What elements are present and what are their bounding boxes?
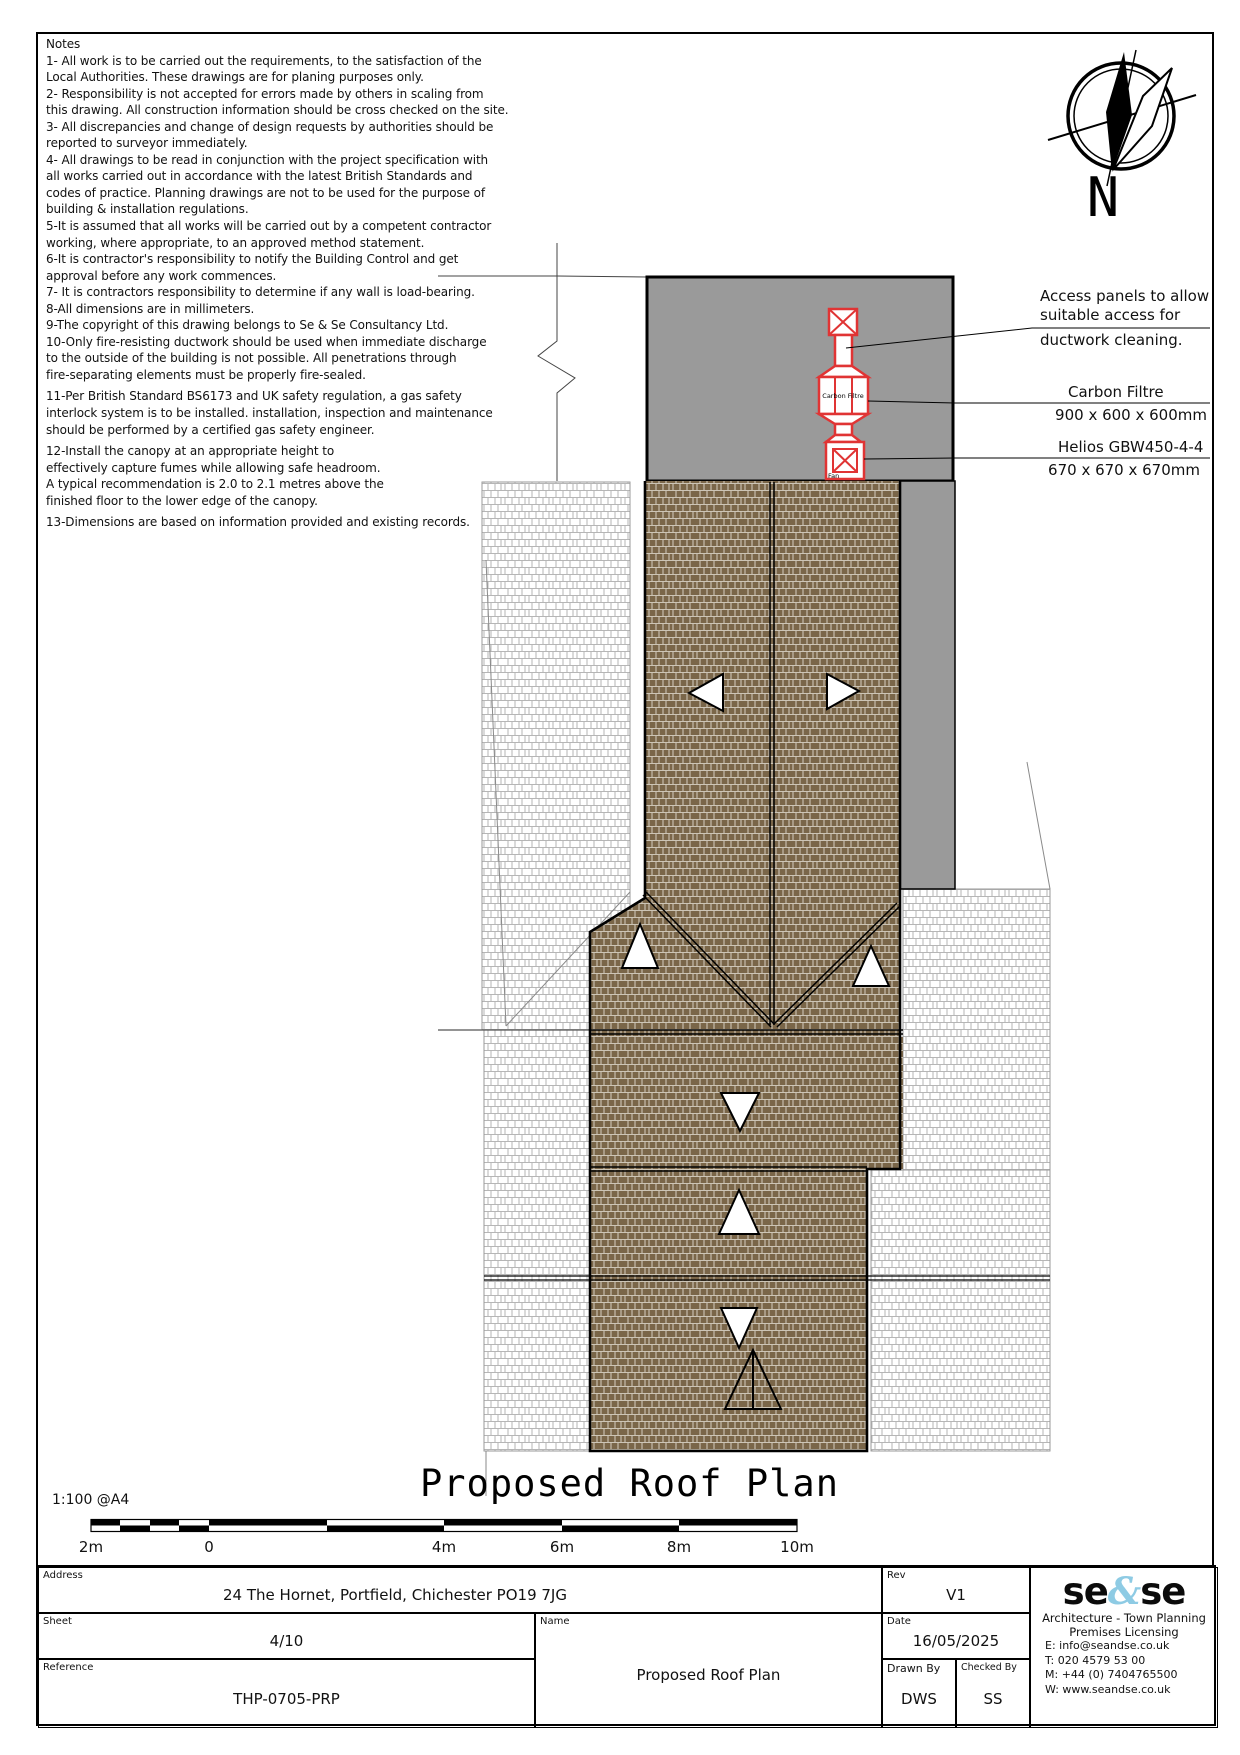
drawn-by-cell: Drawn By DWS bbox=[882, 1659, 956, 1728]
note-line: 3- All discrepancies and change of desig… bbox=[46, 119, 551, 136]
note-line: approval before any work commences. bbox=[46, 268, 551, 285]
carbon-filtre-label: Carbon Filtre bbox=[822, 392, 863, 400]
note-line: 2- Responsibility is not accepted for er… bbox=[46, 86, 551, 103]
reference-value: THP-0705-PRP bbox=[39, 1690, 534, 1708]
company-mobile: M: +44 (0) 7404765500 bbox=[1045, 1668, 1217, 1683]
logo-se-right: se bbox=[1140, 1570, 1185, 1613]
rev-label: Rev bbox=[887, 1570, 906, 1581]
carbon-filtre-dims: 900 x 600 x 600mm bbox=[955, 406, 1207, 424]
note-line: 11-Per British Standard BS6173 and UK sa… bbox=[46, 388, 551, 405]
scale-tick-label: 10m bbox=[780, 1538, 814, 1556]
note-line: this drawing. All construction informati… bbox=[46, 102, 551, 119]
note-line: 13-Dimensions are based on information p… bbox=[46, 514, 551, 531]
notes-title: Notes bbox=[46, 36, 551, 53]
note-line: Local Authorities. These drawings are fo… bbox=[46, 69, 551, 86]
note-line: finished floor to the lower edge of the … bbox=[46, 493, 551, 510]
date-label: Date bbox=[887, 1616, 911, 1627]
note-line: 12-Install the canopy at an appropriate … bbox=[46, 443, 551, 460]
rev-value: V1 bbox=[883, 1586, 1029, 1604]
note-line: should be performed by a certified gas s… bbox=[46, 422, 551, 439]
reference-cell: Reference THP-0705-PRP bbox=[38, 1659, 535, 1728]
note-line: 4- All drawings to be read in conjunctio… bbox=[46, 152, 551, 169]
flat-roof-area bbox=[647, 277, 953, 481]
ampersand-mark-icon: & bbox=[1108, 1569, 1140, 1613]
company-phone: T: 020 4579 53 00 bbox=[1045, 1654, 1217, 1669]
note-line: working, where appropriate, to an approv… bbox=[46, 235, 551, 252]
access-panels-note-line1: Access panels to allow bbox=[1040, 287, 1209, 305]
note-line: codes of practice. Planning drawings are… bbox=[46, 185, 551, 202]
logo-se-left: se bbox=[1063, 1570, 1108, 1613]
note-line: 5-It is assumed that all works will be c… bbox=[46, 218, 551, 235]
sheet-value: 4/10 bbox=[39, 1632, 534, 1650]
title-block: Address 24 The Hornet, Portfield, Chiche… bbox=[36, 1565, 1216, 1726]
checked-by-value: SS bbox=[957, 1690, 1029, 1708]
name-value: Proposed Roof Plan bbox=[536, 1666, 881, 1684]
fan-dims: 670 x 670 x 670mm bbox=[955, 461, 1200, 479]
scale-caption: 1:100 @A4 bbox=[52, 1492, 129, 1508]
company-email: E: info@seandse.co.uk bbox=[1045, 1639, 1217, 1654]
company-logo: se&se bbox=[1031, 1572, 1217, 1611]
fan-model-annotation: Helios GBW450-4-4 bbox=[1058, 438, 1203, 456]
company-website: W: www.seandse.co.uk bbox=[1045, 1683, 1217, 1698]
scale-bar bbox=[91, 1520, 797, 1532]
scale-tick-label: 2m bbox=[79, 1538, 103, 1556]
note-line: fire-separating elements must be properl… bbox=[46, 367, 551, 384]
flat-roof-strip bbox=[900, 481, 955, 889]
drawing-sheet: Carbon Filtre Fan N Notes 1- All work is… bbox=[0, 0, 1240, 1755]
notes-block: Notes 1- All work is to be carried out t… bbox=[46, 36, 551, 531]
note-line: 7- It is contractors responsibility to d… bbox=[46, 284, 551, 301]
access-panels-note-line2: suitable access for bbox=[1040, 306, 1180, 324]
checked-by-label: Checked By bbox=[961, 1662, 1017, 1673]
scale-tick-label: 6m bbox=[550, 1538, 574, 1556]
company-tagline-2: Premises Licensing bbox=[1031, 1625, 1217, 1639]
company-tagline-1: Architecture - Town Planning bbox=[1031, 1611, 1217, 1625]
rev-cell: Rev V1 bbox=[882, 1567, 1030, 1613]
note-line: to the outside of the building is not po… bbox=[46, 350, 551, 367]
scale-tick-label: 0 bbox=[204, 1538, 214, 1556]
reference-label: Reference bbox=[43, 1662, 93, 1673]
fan-label: Fan bbox=[828, 472, 839, 480]
note-line: reported to surveyor immediately. bbox=[46, 135, 551, 152]
scale-tick-label: 8m bbox=[667, 1538, 691, 1556]
address-value: 24 The Hornet, Portfield, Chichester PO1… bbox=[39, 1586, 881, 1604]
note-line: 8-All dimensions are in millimeters. bbox=[46, 301, 551, 318]
note-line: effectively capture fumes while allowing… bbox=[46, 460, 551, 477]
note-line: interlock system is to be installed. ins… bbox=[46, 405, 551, 422]
name-label: Name bbox=[540, 1616, 570, 1627]
note-line: all works carried out in accordance with… bbox=[46, 168, 551, 185]
north-label: N bbox=[1087, 166, 1120, 229]
north-compass: N bbox=[1048, 50, 1196, 229]
sheet-label: Sheet bbox=[43, 1616, 72, 1627]
drawn-by-value: DWS bbox=[883, 1690, 955, 1708]
note-line: 10-Only fire-resisting ductwork should b… bbox=[46, 334, 551, 351]
address-label: Address bbox=[43, 1570, 83, 1581]
drawn-by-label: Drawn By bbox=[887, 1662, 940, 1675]
date-cell: Date 16/05/2025 bbox=[882, 1613, 1030, 1659]
note-line: building & installation regulations. bbox=[46, 201, 551, 218]
drawing-title: Proposed Roof Plan bbox=[420, 1462, 780, 1505]
name-cell: Name Proposed Roof Plan bbox=[535, 1613, 882, 1728]
scale-tick-label: 4m bbox=[432, 1538, 456, 1556]
date-value: 16/05/2025 bbox=[883, 1632, 1029, 1650]
access-panels-note-line3: ductwork cleaning. bbox=[1040, 331, 1183, 349]
note-line: 9-The copyright of this drawing belongs … bbox=[46, 317, 551, 334]
checked-by-cell: Checked By SS bbox=[956, 1659, 1030, 1728]
note-line: 1- All work is to be carried out the req… bbox=[46, 53, 551, 70]
sheet-cell: Sheet 4/10 bbox=[38, 1613, 535, 1659]
address-cell: Address 24 The Hornet, Portfield, Chiche… bbox=[38, 1567, 882, 1613]
carbon-filtre-annotation: Carbon Filtre bbox=[1068, 383, 1164, 401]
note-line: A typical recommendation is 2.0 to 2.1 m… bbox=[46, 476, 551, 493]
company-cell: se&se Architecture - Town Planning Premi… bbox=[1030, 1567, 1218, 1728]
note-line: 6-It is contractor's responsibility to n… bbox=[46, 251, 551, 268]
